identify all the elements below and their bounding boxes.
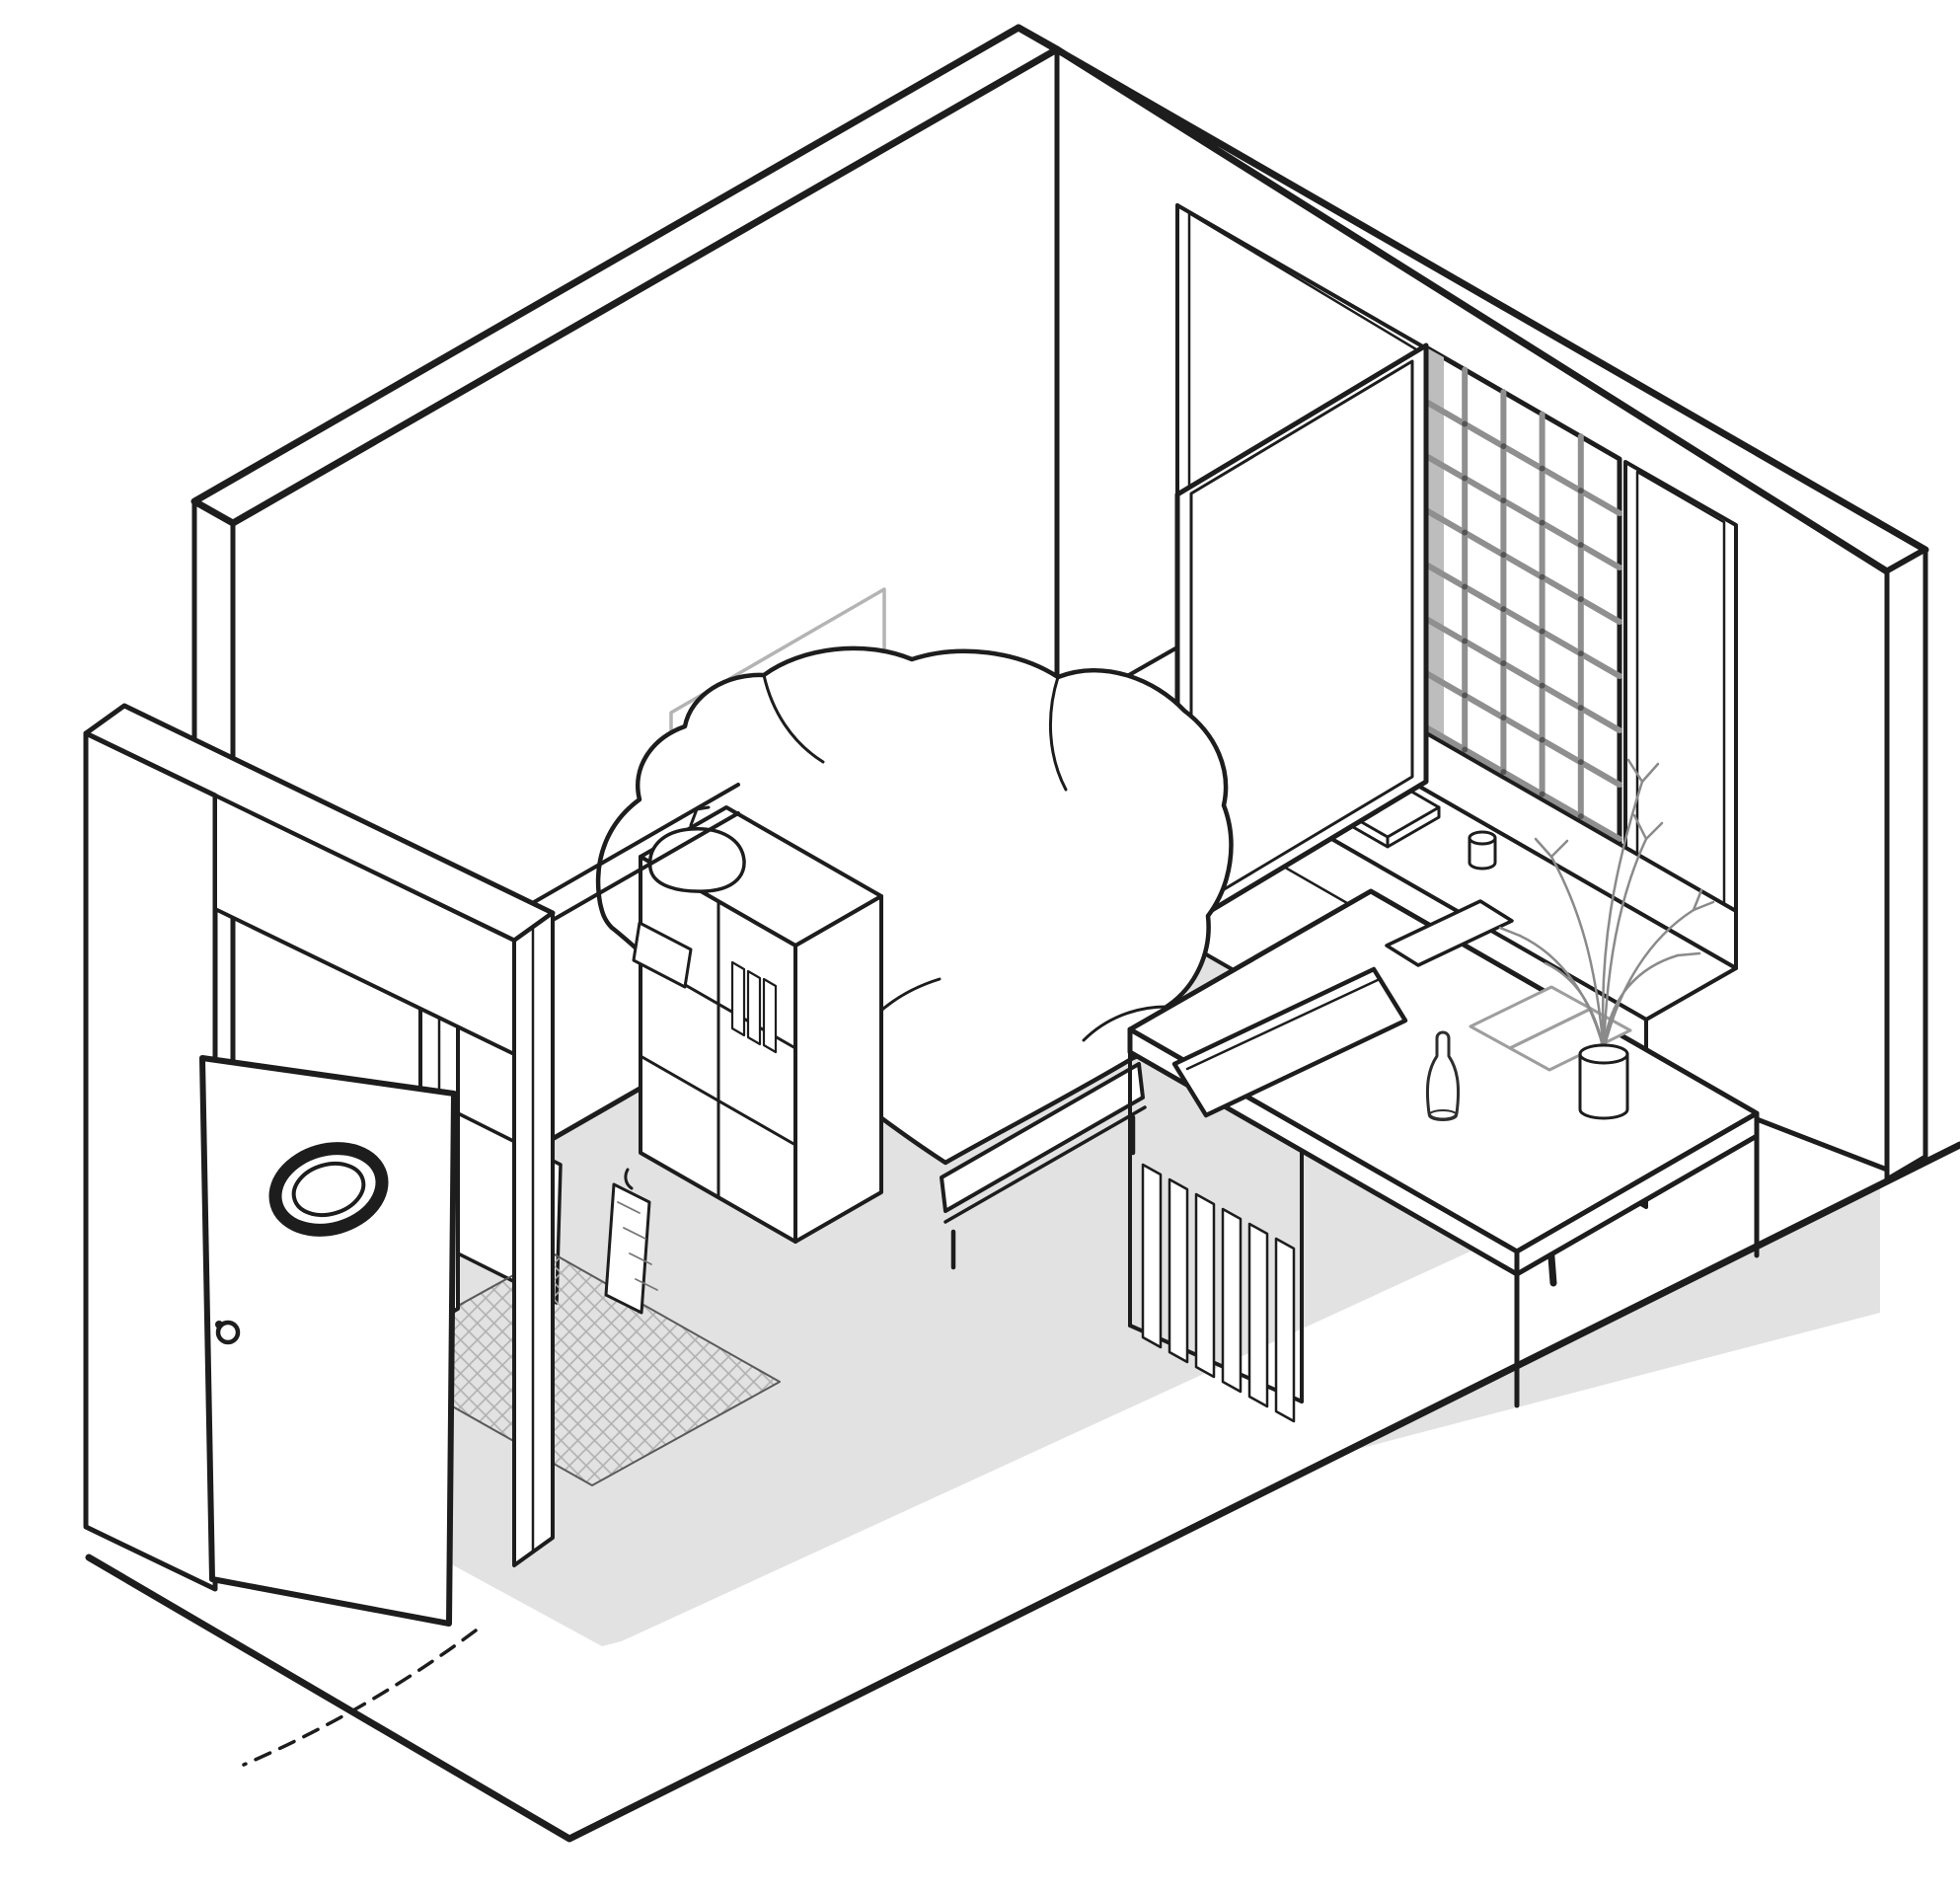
grid-intersection-dot [1500,443,1506,449]
room-axonometric-drawing [0,0,1960,1895]
desk-shelf-book [1276,1239,1294,1421]
vanity-book [748,971,760,1044]
grid-intersection-dot [1578,596,1584,602]
grid-intersection-dot [1462,639,1468,644]
desk-shelf-book [1143,1165,1161,1347]
grid-intersection-dot [1462,530,1468,536]
grid-intersection-dot [1462,476,1468,482]
desk-shelf-book [1169,1179,1187,1362]
grid-intersection-dot [1462,693,1468,699]
illustration-canvas: Isometric cutaway line drawing of a comp… [0,0,1960,1895]
grid-intersection-dot [1500,606,1506,612]
grid-intersection-dot [1462,421,1468,427]
vanity-book [732,962,744,1035]
door-knob-dot [215,1321,223,1328]
vanity-side [795,896,881,1242]
desk-shelf-book [1196,1194,1214,1377]
grid-intersection-dot [1500,497,1506,503]
entry-wall-pier [86,733,215,1589]
grid-intersection-dot [1578,542,1584,548]
plant-vase-rim [1580,1045,1627,1063]
right-wall-end-face [1887,550,1925,1179]
grid-intersection-dot [1462,584,1468,590]
grid-intersection-dot [1540,683,1545,689]
grid-intersection-dot [1540,520,1545,526]
grid-intersection-dot [1578,705,1584,711]
vanity-book [764,979,776,1052]
grid-intersection-dot [1462,747,1468,753]
cup-on-bench-rim [1470,832,1495,844]
desk-shelf-book [1249,1224,1267,1406]
grid-intersection-dot [1540,574,1545,580]
grid-intersection-dot [1500,715,1506,720]
grid-intersection-dot [1500,769,1506,775]
grid-intersection-dot [1578,650,1584,656]
grid-intersection-dot [1500,552,1506,558]
grid-intersection-dot [1540,737,1545,743]
grid-intersection-dot [1540,629,1545,635]
hanging-towel [606,1184,649,1313]
grid-intersection-dot [1500,660,1506,666]
desk-shelf-book [1223,1209,1241,1392]
grid-intersection-dot [1578,488,1584,493]
grid-intersection-dot [1578,759,1584,765]
grid-intersection-dot [1540,466,1545,472]
